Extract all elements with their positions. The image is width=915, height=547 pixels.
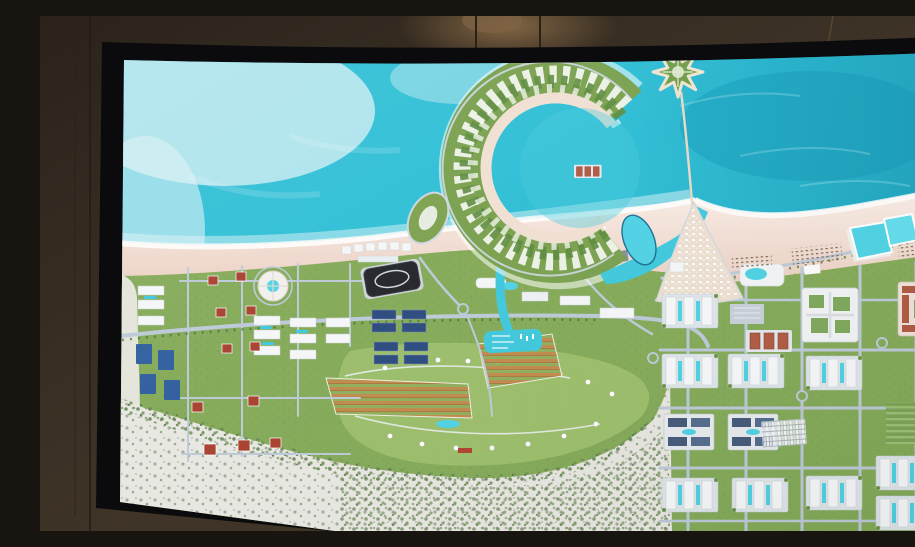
masterplan-photo-svg (40, 16, 915, 531)
photo-of-tv-masterplan (40, 16, 915, 531)
tv-screen (75, 36, 915, 531)
screen-glare (120, 52, 915, 531)
